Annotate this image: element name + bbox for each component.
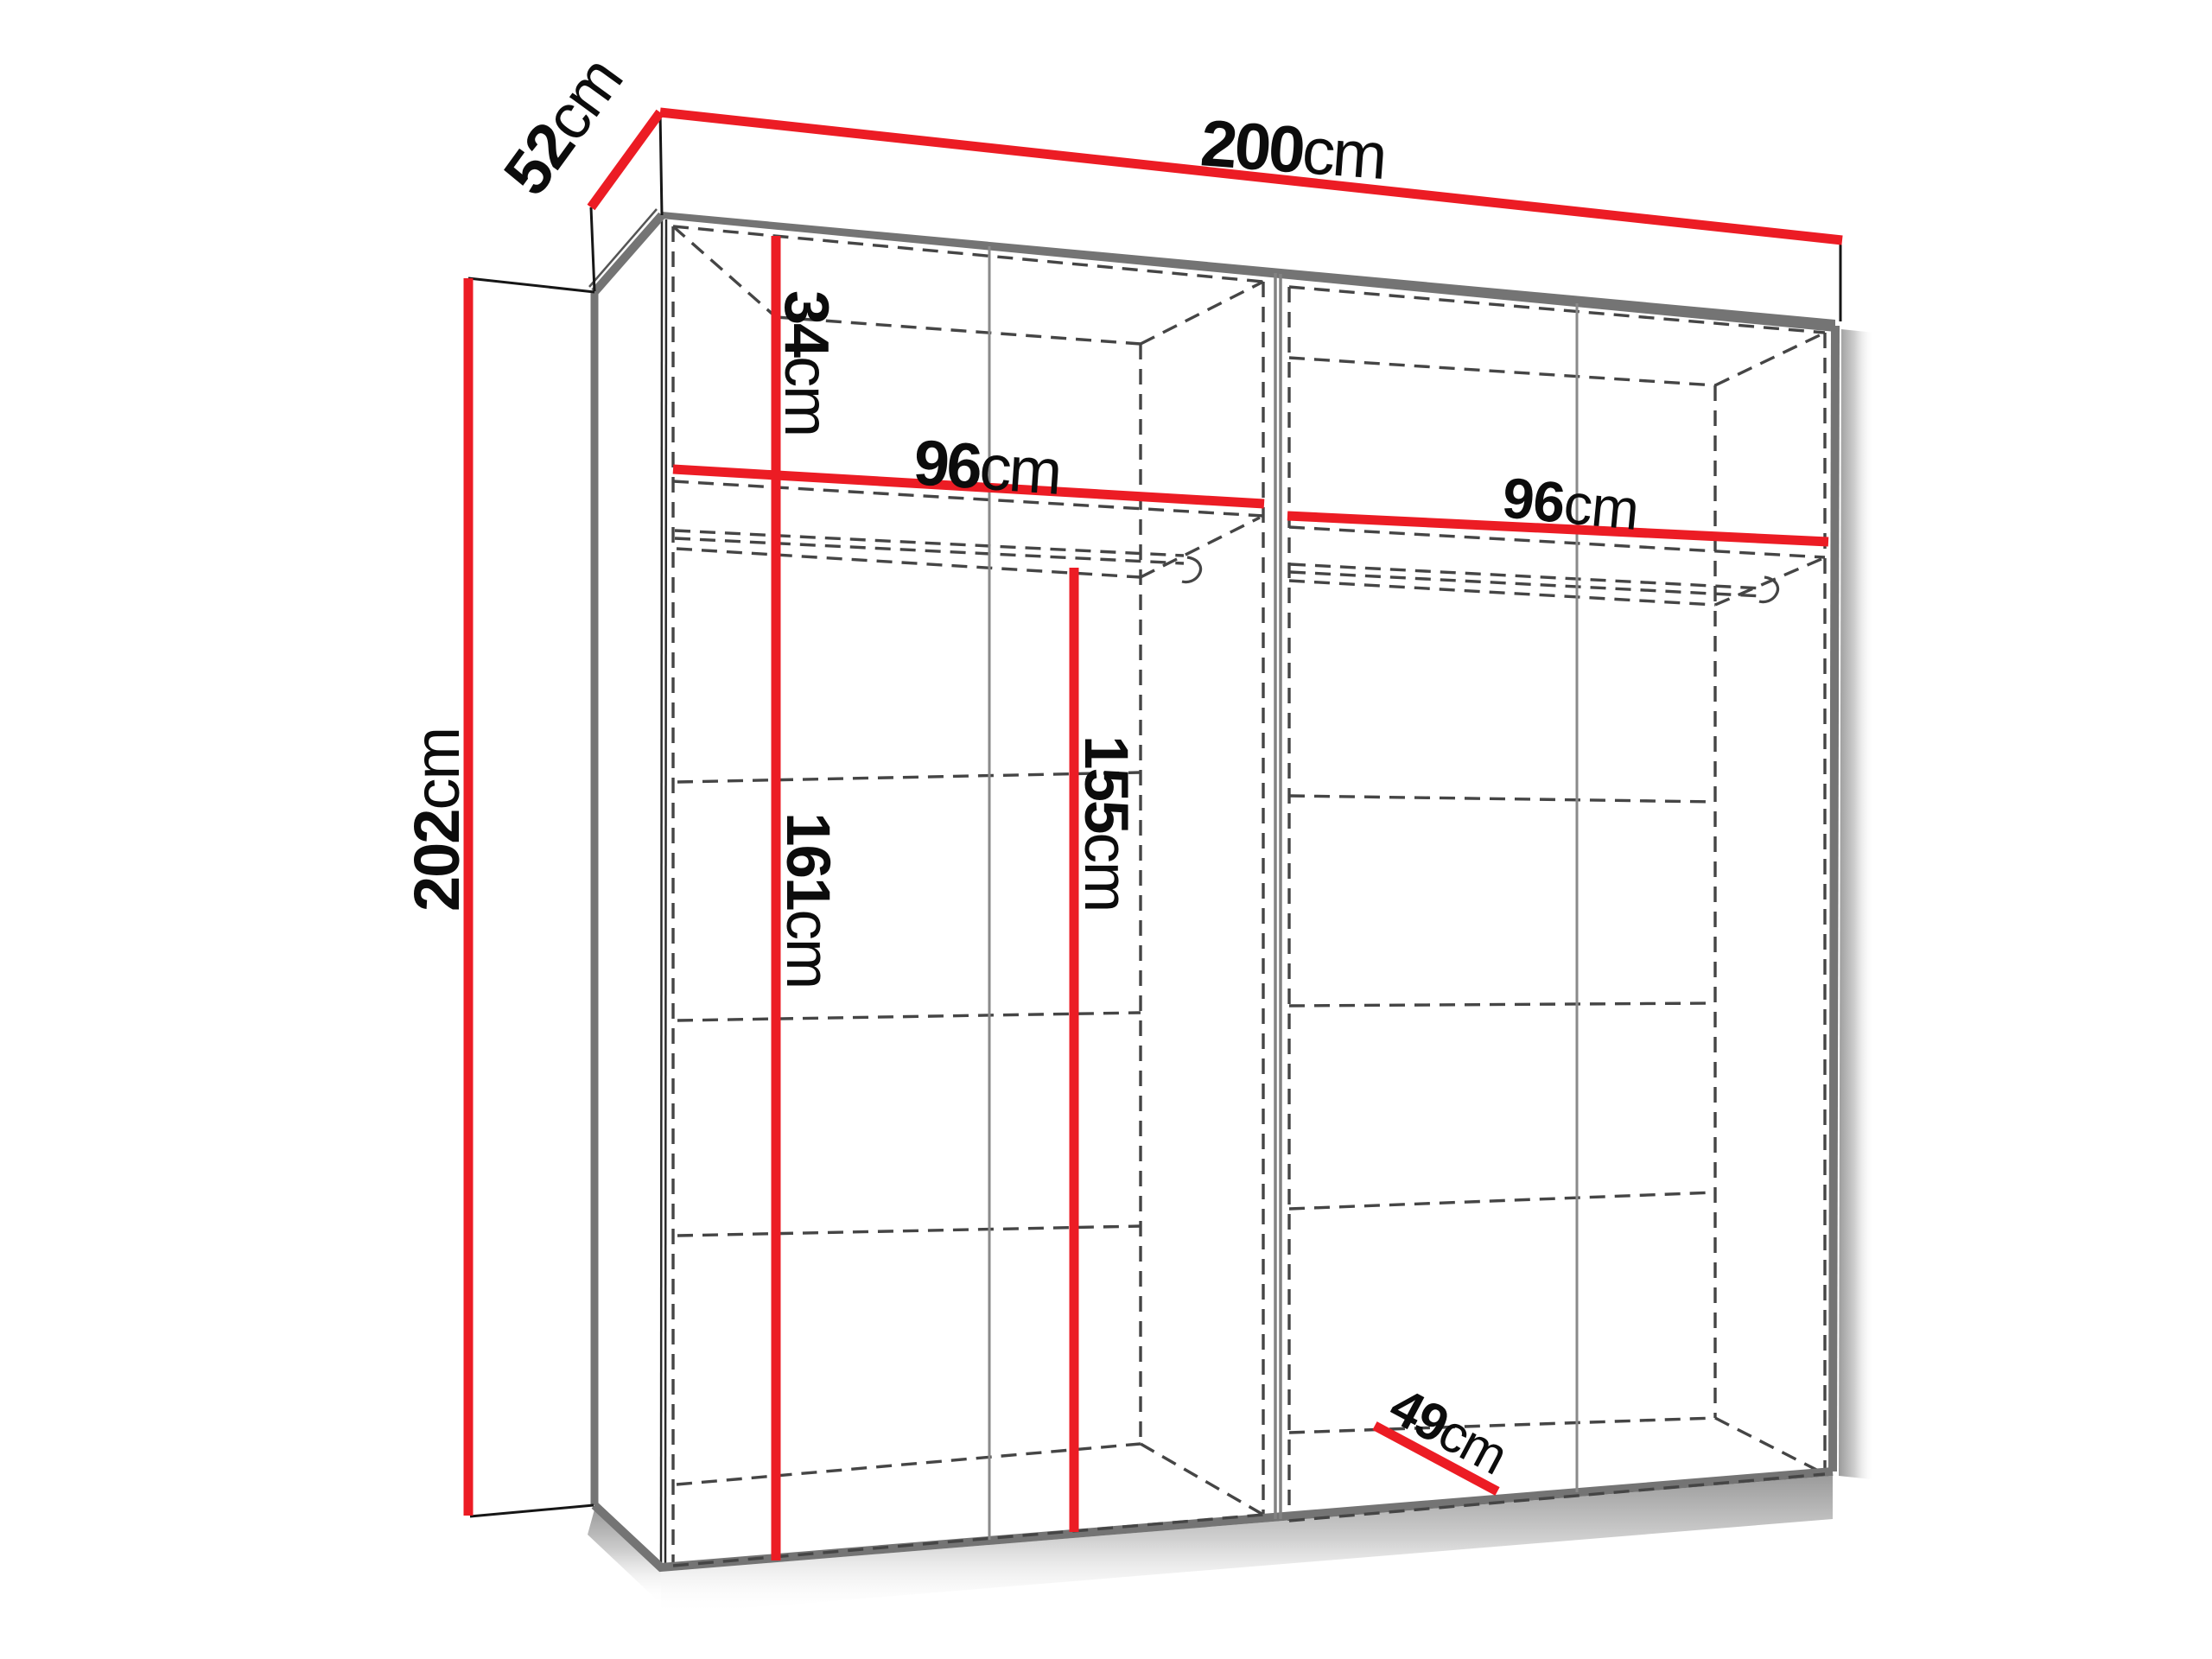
svg-text:34cm: 34cm [772,290,841,435]
svg-text:96cm: 96cm [912,426,1062,508]
svg-text:202cm: 202cm [401,728,473,912]
svg-text:161cm: 161cm [773,812,842,988]
svg-text:200cm: 200cm [1198,106,1388,194]
svg-text:96cm: 96cm [1500,465,1642,542]
svg-text:155cm: 155cm [1071,735,1140,911]
